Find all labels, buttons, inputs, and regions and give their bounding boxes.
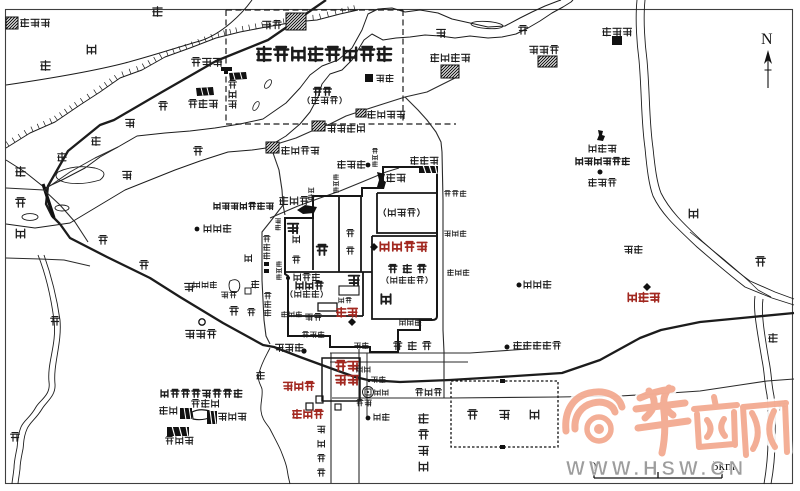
- svg-text:N: N: [761, 31, 773, 48]
- svg-text:WWW.HSW.CN: WWW.HSW.CN: [566, 458, 747, 480]
